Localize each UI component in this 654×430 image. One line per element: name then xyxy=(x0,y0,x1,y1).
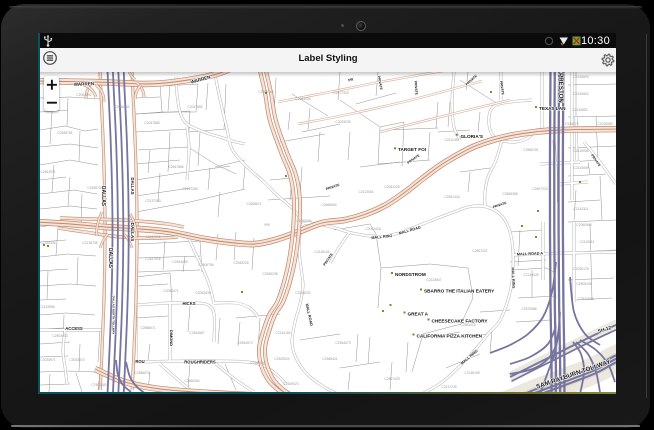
svg-text:C2047888: C2047888 xyxy=(144,121,159,125)
svg-text:DALLAS: DALLAS xyxy=(100,186,106,207)
svg-text:C2140802: C2140802 xyxy=(573,92,588,96)
svg-text:C2143311: C2143311 xyxy=(574,207,589,211)
svg-text:C2570586: C2570586 xyxy=(521,307,536,311)
svg-text:C2505436: C2505436 xyxy=(576,282,591,286)
svg-text:GREAT A: GREAT A xyxy=(408,312,429,317)
svg-text:C2647866: C2647866 xyxy=(168,165,183,169)
svg-text:999: 999 xyxy=(264,223,270,227)
svg-text:C2529024: C2529024 xyxy=(274,357,289,361)
svg-text:C7601480: C7601480 xyxy=(91,383,106,387)
svg-text:C2545228: C2545228 xyxy=(233,261,248,265)
svg-text:SBARRO THE ITALIAN EATERY: SBARRO THE ITALIAN EATERY xyxy=(424,289,495,294)
svg-text:C2544669: C2544669 xyxy=(172,260,187,264)
svg-text:C2529023: C2529023 xyxy=(283,382,298,386)
svg-text:C2137265: C2137265 xyxy=(182,187,197,191)
svg-text:C2544667: C2544667 xyxy=(189,331,204,335)
svg-text:C2146199: C2146199 xyxy=(464,371,479,375)
svg-text:C2565368: C2565368 xyxy=(502,192,517,196)
svg-text:C2666664: C2666664 xyxy=(321,203,336,207)
svg-text:C2565157: C2565157 xyxy=(250,361,265,365)
svg-text:C2545238: C2545238 xyxy=(262,272,277,276)
svg-text:CALIFORNIA PIZZA KITCHEN: CALIFORNIA PIZZA KITCHEN xyxy=(417,334,483,339)
svg-text:C2023035: C2023035 xyxy=(335,120,350,124)
svg-text:ROUGHRIDERS: ROUGHRIDERS xyxy=(184,360,216,365)
svg-text:C2332426: C2332426 xyxy=(40,241,55,245)
svg-text:C2660094: C2660094 xyxy=(296,219,311,223)
svg-text:C2506756: C2506756 xyxy=(198,263,213,267)
svg-text:C2023034: C2023034 xyxy=(295,97,310,101)
svg-text:C2608671: C2608671 xyxy=(246,202,261,206)
svg-text:TARGET FOI: TARGET FOI xyxy=(398,147,426,152)
svg-text:C2063435: C2063435 xyxy=(195,291,210,295)
svg-text:C2503913: C2503913 xyxy=(52,334,67,338)
svg-text:C2560284: C2560284 xyxy=(184,379,199,383)
svg-text:C2567421: C2567421 xyxy=(472,249,487,253)
svg-text:DALLAS: DALLAS xyxy=(130,178,135,195)
svg-text:C2661971: C2661971 xyxy=(40,170,55,174)
svg-text:WARREN: WARREN xyxy=(74,81,95,87)
svg-text:C2064892: C2064892 xyxy=(76,93,91,97)
svg-text:E516079: E516079 xyxy=(565,122,578,126)
svg-text:C2561416: C2561416 xyxy=(444,195,459,199)
svg-text:PRESTON: PRESTON xyxy=(557,73,564,103)
svg-text:C3033972: C3033972 xyxy=(69,358,84,362)
svg-text:C2567429: C2567429 xyxy=(384,377,399,381)
svg-text:C2030178: C2030178 xyxy=(573,267,588,271)
svg-text:DALLAS NORTH TOLLWAY: DALLAS NORTH TOLLWAY xyxy=(112,296,116,335)
svg-text:HICKS: HICKS xyxy=(182,301,195,306)
svg-text:C2544573: C2544573 xyxy=(237,341,252,345)
svg-text:C2115014: C2115014 xyxy=(580,240,595,244)
svg-text:DIMOND: DIMOND xyxy=(169,330,174,346)
svg-text:C2123847: C2123847 xyxy=(426,278,441,282)
svg-text:C2060580: C2060580 xyxy=(576,223,591,227)
svg-text:C2063471: C2063471 xyxy=(163,289,178,293)
svg-text:C2518032: C2518032 xyxy=(295,291,310,295)
svg-text:ACCESS: ACCESS xyxy=(65,326,83,331)
svg-text:C2147239: C2147239 xyxy=(441,385,456,389)
svg-text:C2544673: C2544673 xyxy=(335,341,350,345)
svg-text:C2116146: C2116146 xyxy=(315,250,330,254)
svg-text:C2115009: C2115009 xyxy=(574,166,589,170)
svg-text:C2560191: C2560191 xyxy=(523,148,538,152)
svg-text:C2144164: C2144164 xyxy=(275,331,290,335)
svg-text:C2140852: C2140852 xyxy=(572,108,587,112)
svg-text:C2565421: C2565421 xyxy=(322,357,337,361)
svg-text:C2061418: C2061418 xyxy=(365,227,380,231)
svg-text:C2635781: C2635781 xyxy=(57,131,72,135)
svg-text:C2647916: C2647916 xyxy=(145,257,160,261)
svg-text:C2111457: C2111457 xyxy=(445,138,460,142)
svg-text:ROU: ROU xyxy=(135,359,144,364)
svg-text:C2138755: C2138755 xyxy=(82,241,97,245)
svg-text:C2586670: C2586670 xyxy=(134,371,149,375)
svg-text:C2586671: C2586671 xyxy=(140,326,155,330)
svg-text:C2143996: C2143996 xyxy=(40,305,55,309)
svg-text:DALLAS: DALLAS xyxy=(107,248,113,269)
svg-text:C2677315: C2677315 xyxy=(333,91,348,95)
svg-text:C2574636: C2574636 xyxy=(578,297,593,301)
svg-text:C3033971: C3033971 xyxy=(40,358,55,362)
svg-text:TEXAS LAN: TEXAS LAN xyxy=(539,106,566,111)
svg-text:C2607219: C2607219 xyxy=(532,187,547,191)
svg-text:CHEESECAKE FACTORY: CHEESECAKE FACTORY xyxy=(432,319,489,324)
svg-text:C2047880: C2047880 xyxy=(187,105,202,109)
svg-text:GLORIA'S: GLORIA'S xyxy=(461,134,483,139)
svg-text:C2061226: C2061226 xyxy=(384,185,399,189)
svg-text:C2113064: C2113064 xyxy=(359,190,374,194)
svg-text:C2647915: C2647915 xyxy=(145,235,160,239)
svg-text:C2115008: C2115008 xyxy=(574,149,589,153)
svg-text:C2137263: C2137263 xyxy=(145,199,160,203)
svg-text:DALLAS: DALLAS xyxy=(130,223,135,242)
svg-text:C2016080: C2016080 xyxy=(597,122,612,126)
svg-text:C2146026: C2146026 xyxy=(523,273,538,277)
svg-text:NORDSTROM: NORDSTROM xyxy=(395,272,426,277)
svg-text:C2066862: C2066862 xyxy=(114,105,129,109)
